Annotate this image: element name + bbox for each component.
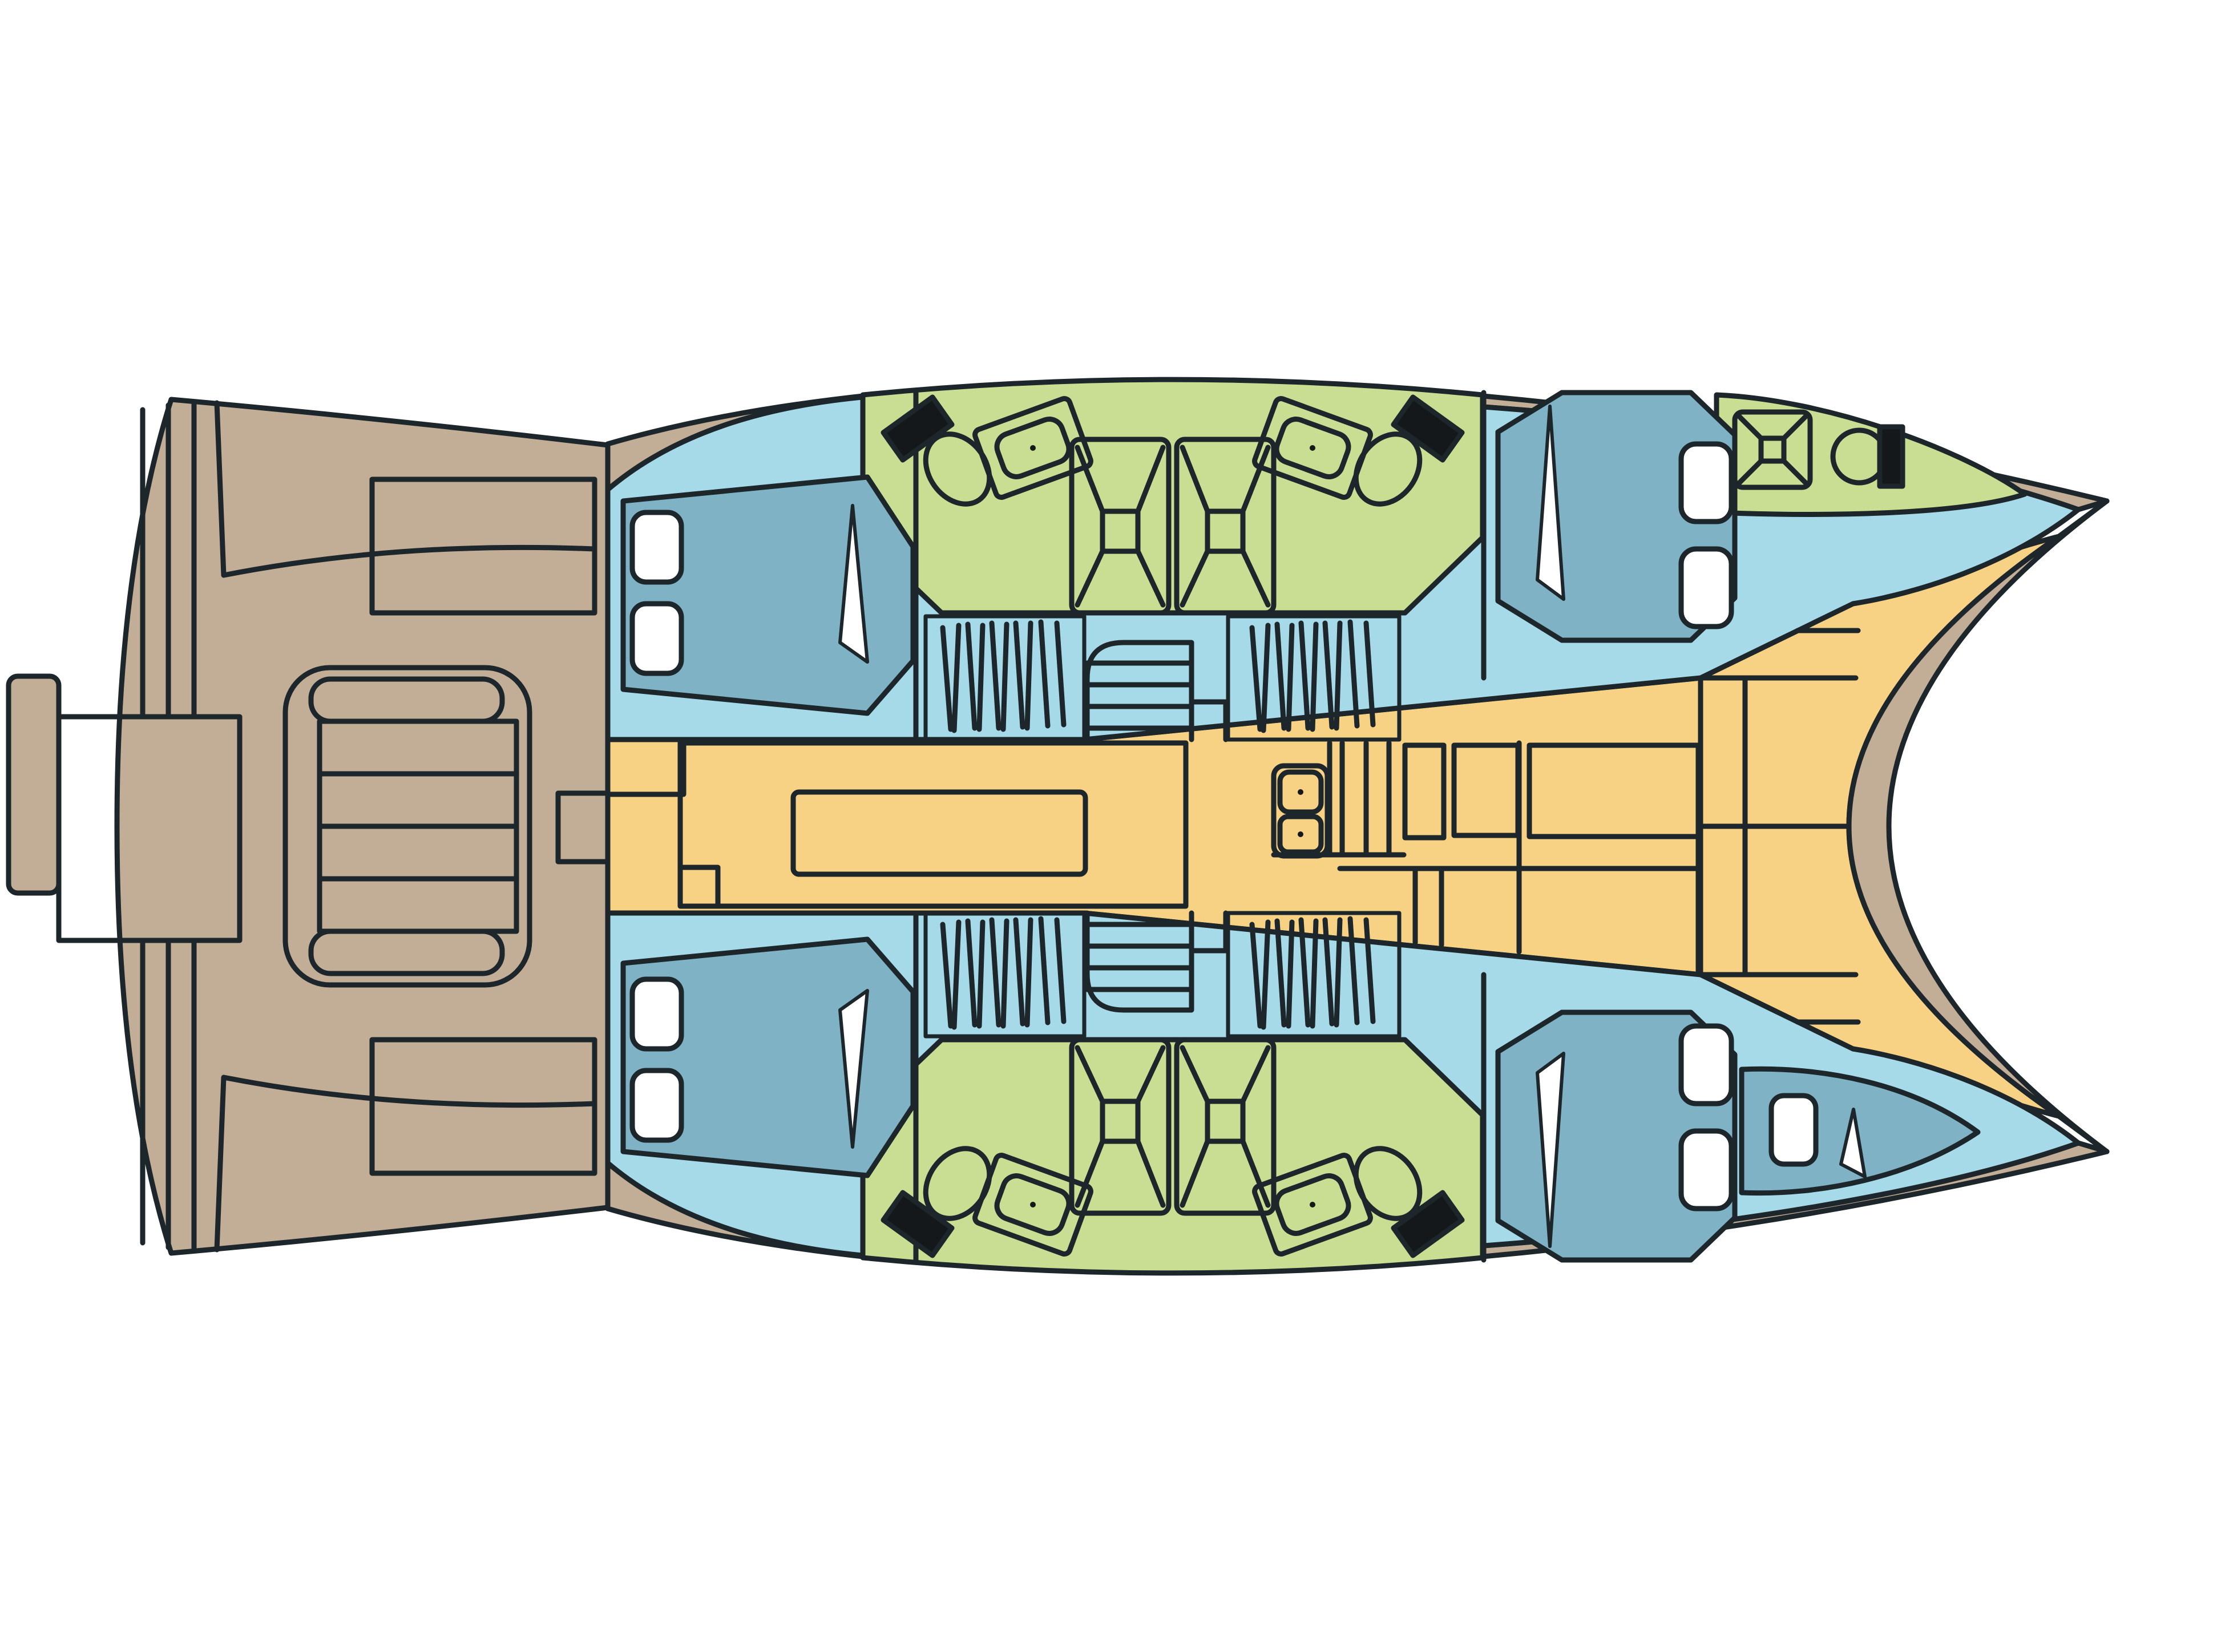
- hull-window: [632, 979, 681, 1049]
- faucet-dot: [1030, 445, 1036, 451]
- hull-window: [1681, 549, 1731, 627]
- hull-window: [1681, 444, 1731, 522]
- hull-window: [1771, 1096, 1816, 1164]
- hull-window: [632, 512, 681, 582]
- faucet-dot: [1298, 789, 1303, 795]
- faucet-dot: [1298, 831, 1303, 837]
- starboard-head-room: [863, 1040, 1483, 1273]
- deck-plan-figure: [0, 0, 2217, 1652]
- bow-toilet-tank: [1880, 427, 1903, 486]
- hull-window: [1681, 1131, 1731, 1209]
- faucet-dot: [1310, 1202, 1315, 1207]
- hull-window: [632, 604, 681, 673]
- deck-plan-page: [0, 0, 2217, 1652]
- faucet-dot: [1310, 445, 1315, 451]
- hull-window: [1681, 1026, 1731, 1104]
- port-head-room: [863, 379, 1483, 613]
- stern-swim-platform: [9, 676, 59, 893]
- plan-root: [9, 379, 2107, 1273]
- hull-window: [632, 1071, 681, 1140]
- faucet-dot: [1030, 1202, 1036, 1207]
